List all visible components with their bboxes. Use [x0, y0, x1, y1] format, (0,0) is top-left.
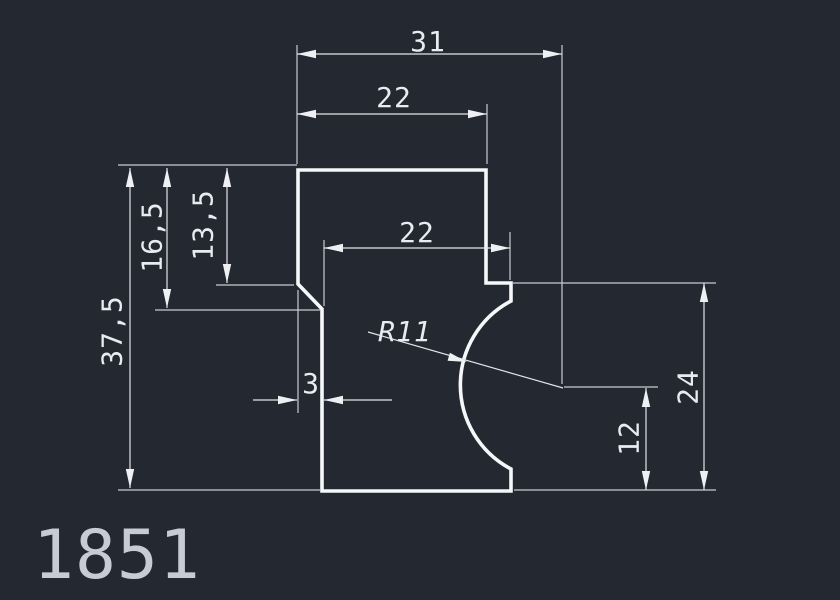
dim-label-total-width: 31 — [410, 25, 446, 58]
dim-label-arc-radius: R11 — [378, 315, 432, 348]
dim-label-chamfer-start-depth: 13,5 — [186, 189, 219, 260]
dim-label-middle-width: 22 — [399, 216, 435, 249]
cad-drawing: 31 22 16,5 13,5 37,5 22 — [0, 0, 840, 600]
part-number-label: 1851 — [33, 516, 201, 595]
dim-label-total-height: 37,5 — [95, 295, 128, 366]
dim-label-chamfer-width: 3 — [302, 367, 320, 400]
dim-label-upper-left-depth: 16,5 — [135, 201, 168, 272]
dim-label-notch-step-height: 24 — [671, 369, 704, 405]
dim-label-top-width: 22 — [376, 81, 412, 114]
dim-label-arc-center-height: 12 — [612, 420, 645, 456]
